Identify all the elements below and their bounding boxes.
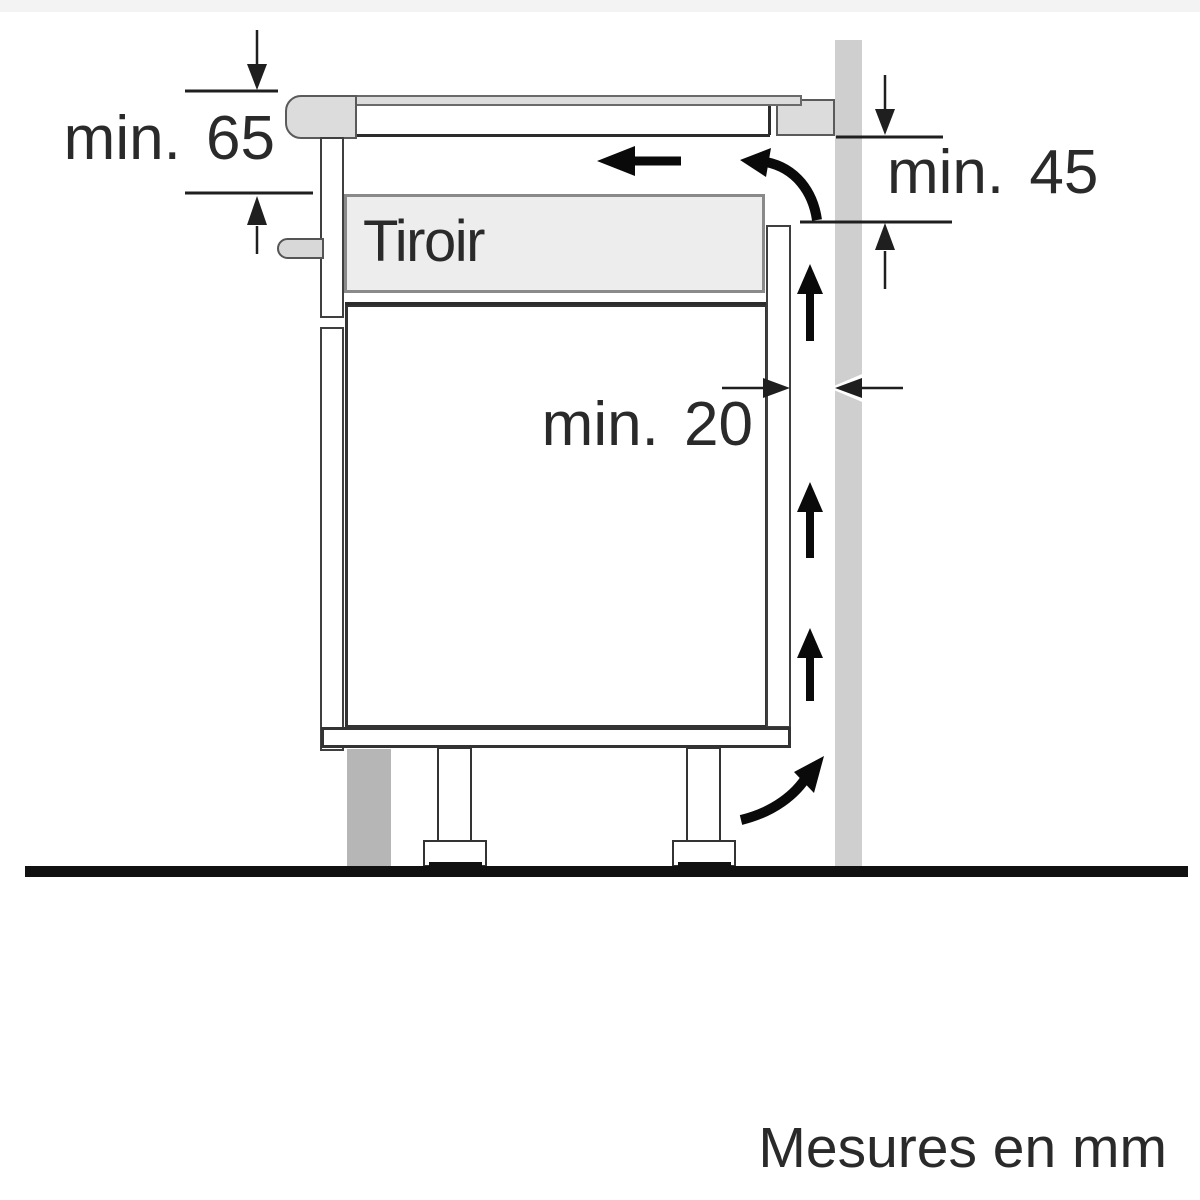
airflow-arrow-left-icon <box>597 146 635 176</box>
dimension-label-min45: min. 45 <box>887 142 1127 204</box>
dimension-arrow-up-icon <box>875 223 895 250</box>
installation-diagram: min. 65 min. 45 min. 20 Tiroir Mesures e… <box>0 0 1200 1200</box>
airflow-curve-bottom <box>741 776 807 820</box>
dimension-arrow-down-icon <box>875 109 895 135</box>
airflow-arrows <box>597 146 824 820</box>
airflow-arrow-up-3-icon <box>797 628 823 658</box>
airflow-arrow-up-1-icon <box>797 264 823 294</box>
airflow-curve-top <box>766 162 817 220</box>
dimension-lines <box>185 91 952 222</box>
dimension-arrow-up-icon <box>247 196 267 225</box>
airflow-arrow-curved-top-icon <box>740 148 771 177</box>
units-note: Mesures en mm <box>740 1120 1167 1177</box>
dimension-arrow-right-icon <box>763 378 790 398</box>
dimension-label-min65: min. 65 <box>40 108 275 170</box>
dimension-arrow-down-icon <box>247 64 267 90</box>
dimension-label-min20: min. 20 <box>520 394 753 456</box>
airflow-arrow-up-2-icon <box>797 482 823 512</box>
drawer-label: Tiroir <box>363 213 484 271</box>
